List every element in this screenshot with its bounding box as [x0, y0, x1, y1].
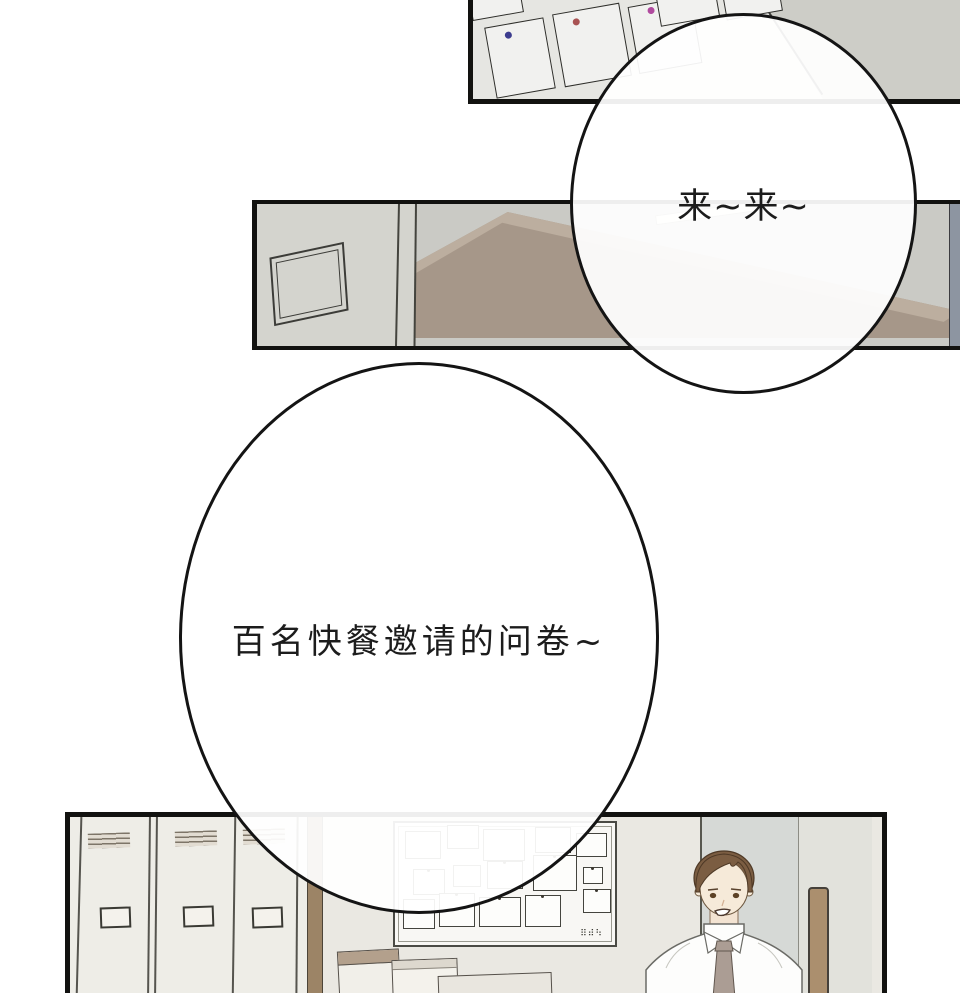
eyebrow-left	[708, 889, 718, 890]
push-pin-red	[572, 18, 580, 26]
board-note	[583, 867, 603, 884]
eye-right	[733, 893, 739, 898]
pin-dot	[595, 889, 598, 892]
locker-vent	[175, 830, 217, 846]
speech-text: 百名快餐邀请的问卷~	[232, 614, 607, 663]
push-pin-magenta	[647, 6, 655, 14]
tie-band	[713, 951, 735, 993]
comic-page: ⠿⠾⠳	[0, 0, 960, 993]
locker-edge	[232, 817, 236, 993]
pin-dot	[591, 867, 594, 870]
pinned-note	[484, 17, 556, 98]
paper-box-lid	[392, 959, 456, 970]
locker-handle	[100, 906, 132, 928]
board-note	[583, 889, 611, 913]
tie-knot	[715, 941, 733, 951]
eyebrow-right	[731, 889, 741, 890]
speech-text: 来~来~	[677, 178, 810, 229]
wall-sign-frame	[269, 242, 348, 326]
locker-vent	[88, 832, 130, 848]
pinned-note	[468, 0, 524, 21]
board-scribble-marks: ⠿⠾⠳	[580, 929, 603, 939]
locker-edge	[147, 817, 150, 993]
board-note	[525, 895, 561, 927]
locker-handle	[183, 905, 215, 927]
wall-sign-frame-inner	[276, 249, 343, 319]
door-edge-line	[394, 200, 400, 350]
locker-handle	[252, 906, 284, 928]
speech-bubble: 百名快餐邀请的问卷~	[179, 362, 659, 914]
pin-dot	[541, 895, 544, 898]
broom-handle	[808, 887, 829, 993]
paper-box-lid	[338, 949, 399, 965]
locker-edge	[154, 817, 157, 993]
paper-tray	[438, 972, 553, 993]
man-character	[644, 848, 804, 993]
speech-bubble: 来~来~	[570, 13, 917, 394]
eye-left	[710, 893, 716, 898]
push-pin-blue	[504, 31, 512, 39]
side-wall-strip	[949, 204, 960, 346]
locker-edge	[76, 817, 82, 993]
